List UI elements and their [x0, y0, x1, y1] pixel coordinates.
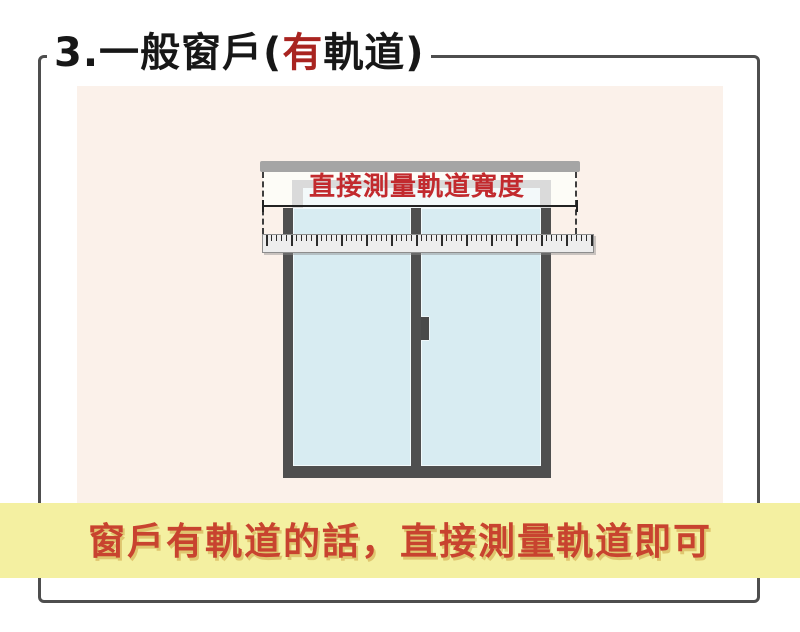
caption-banner: 窗戶有軌道的話，直接測量軌道即可 [0, 503, 800, 578]
page-title-highlight: 有 [282, 30, 323, 76]
measure-tick-left [262, 200, 264, 212]
illustration-canvas: 直接測量軌道寬度 [77, 86, 723, 503]
track-width-label: 直接測量軌道寬度 [283, 170, 551, 204]
page-title-prefix: 3.一般窗戶( [54, 30, 282, 76]
caption-text: 窗戶有軌道的話，直接測量軌道即可 [0, 503, 800, 578]
infographic-page: 3.一般窗戶(有軌道) 直接測量軌道寬度 窗戶有軌道的話，直接測量軌道即可 [0, 0, 800, 632]
measuring-ruler [262, 234, 594, 253]
page-title-suffix: 軌道) [323, 30, 424, 76]
window-handle [421, 317, 429, 340]
measure-line [263, 205, 577, 207]
measure-tick-right [576, 200, 578, 212]
page-title: 3.一般窗戶(有軌道) [54, 24, 425, 82]
